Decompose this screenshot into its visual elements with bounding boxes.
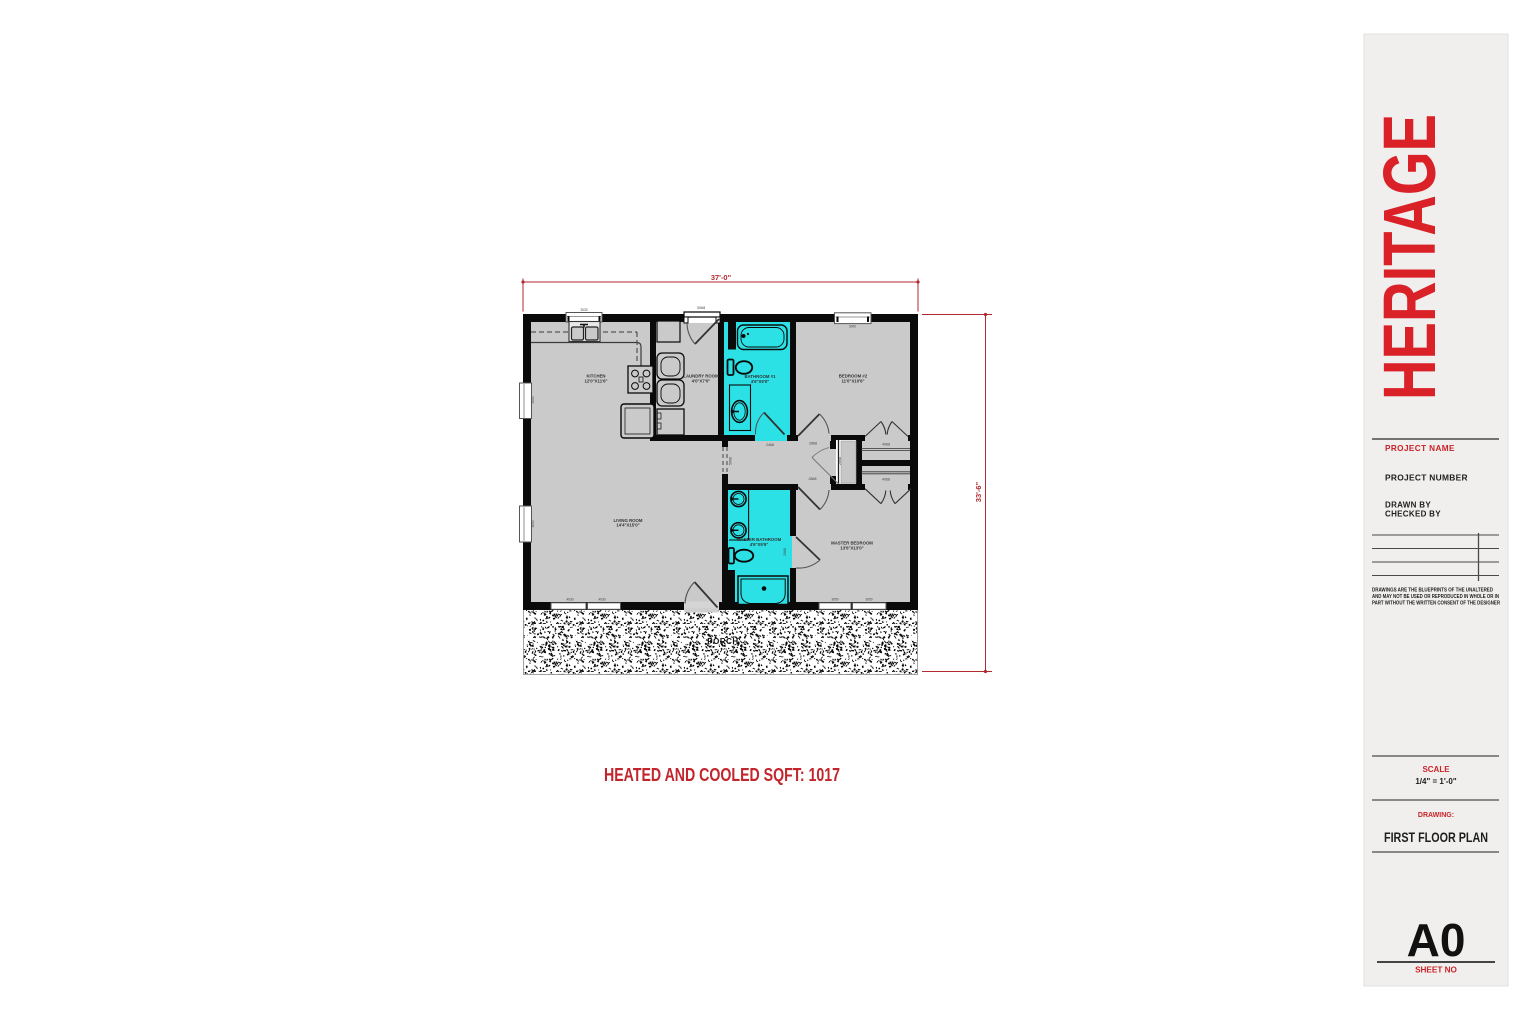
svg-text:1/4" = 1'-0": 1/4" = 1'-0" <box>1415 777 1456 786</box>
svg-text:4'0"X7'0": 4'0"X7'0" <box>692 378 711 383</box>
svg-text:11'0"X10'6": 11'0"X10'6" <box>841 378 864 383</box>
svg-text:13'6"X13'0": 13'6"X13'0" <box>840 545 863 550</box>
svg-text:SCALE: SCALE <box>1422 765 1450 774</box>
svg-text:2068: 2068 <box>838 457 842 465</box>
svg-text:37'-0": 37'-0" <box>711 273 732 282</box>
svg-text:2868: 2868 <box>809 442 817 446</box>
svg-text:14'4"X15'0": 14'4"X15'0" <box>616 523 639 528</box>
svg-text:PART WITHOUT THE WRITTEN CONSE: PART WITHOUT THE WRITTEN CONSENT OF THE … <box>1372 601 1500 607</box>
svg-text:33'-6": 33'-6" <box>974 481 983 502</box>
svg-text:3050: 3050 <box>831 597 838 601</box>
svg-text:A0: A0 <box>1407 914 1466 966</box>
svg-text:HERITAGE: HERITAGE <box>1368 114 1451 400</box>
svg-text:3042: 3042 <box>849 325 856 329</box>
svg-text:5068: 5068 <box>729 457 733 465</box>
svg-text:DRAWINGS ARE THE BLUEPRINTS OF: DRAWINGS ARE THE BLUEPRINTS OF THE UNALT… <box>1372 588 1493 594</box>
svg-text:4068: 4068 <box>882 478 890 482</box>
svg-text:DRAWN BY: DRAWN BY <box>1385 501 1431 510</box>
svg-text:PROJECT NUMBER: PROJECT NUMBER <box>1385 473 1468 483</box>
svg-text:3068: 3068 <box>697 306 705 310</box>
svg-text:3030: 3030 <box>580 308 587 312</box>
svg-text:4030: 4030 <box>598 597 605 601</box>
svg-text:2068: 2068 <box>783 548 787 556</box>
svg-text:2868: 2868 <box>809 477 817 481</box>
svg-text:PORCH: PORCH <box>707 637 738 646</box>
svg-text:4068: 4068 <box>882 443 890 447</box>
svg-text:HEATED AND COOLED SQFT: 1017: HEATED AND COOLED SQFT: 1017 <box>604 764 840 785</box>
svg-text:AND MAY NOT BE USED OR REPRODU: AND MAY NOT BE USED OR REPRODUCED IN WHO… <box>1372 594 1499 600</box>
svg-text:3050: 3050 <box>865 597 872 601</box>
svg-text:SHEET NO: SHEET NO <box>1415 966 1457 975</box>
svg-text:CHECKED BY: CHECKED BY <box>1385 510 1441 519</box>
svg-text:FIRST FLOOR PLAN: FIRST FLOOR PLAN <box>1384 830 1488 845</box>
svg-text:4'6"X9'6": 4'6"X9'6" <box>750 542 769 547</box>
svg-text:3050: 3050 <box>531 396 535 403</box>
svg-text:3050: 3050 <box>531 520 535 527</box>
svg-text:PROJECT NAME: PROJECT NAME <box>1385 444 1455 453</box>
svg-text:2468: 2468 <box>766 443 774 447</box>
svg-text:DRAWING:: DRAWING: <box>1418 812 1454 819</box>
svg-text:12'0"X11'6": 12'0"X11'6" <box>584 378 607 383</box>
svg-text:4030: 4030 <box>566 597 573 601</box>
svg-text:4'6"X9'0": 4'6"X9'0" <box>751 379 770 384</box>
